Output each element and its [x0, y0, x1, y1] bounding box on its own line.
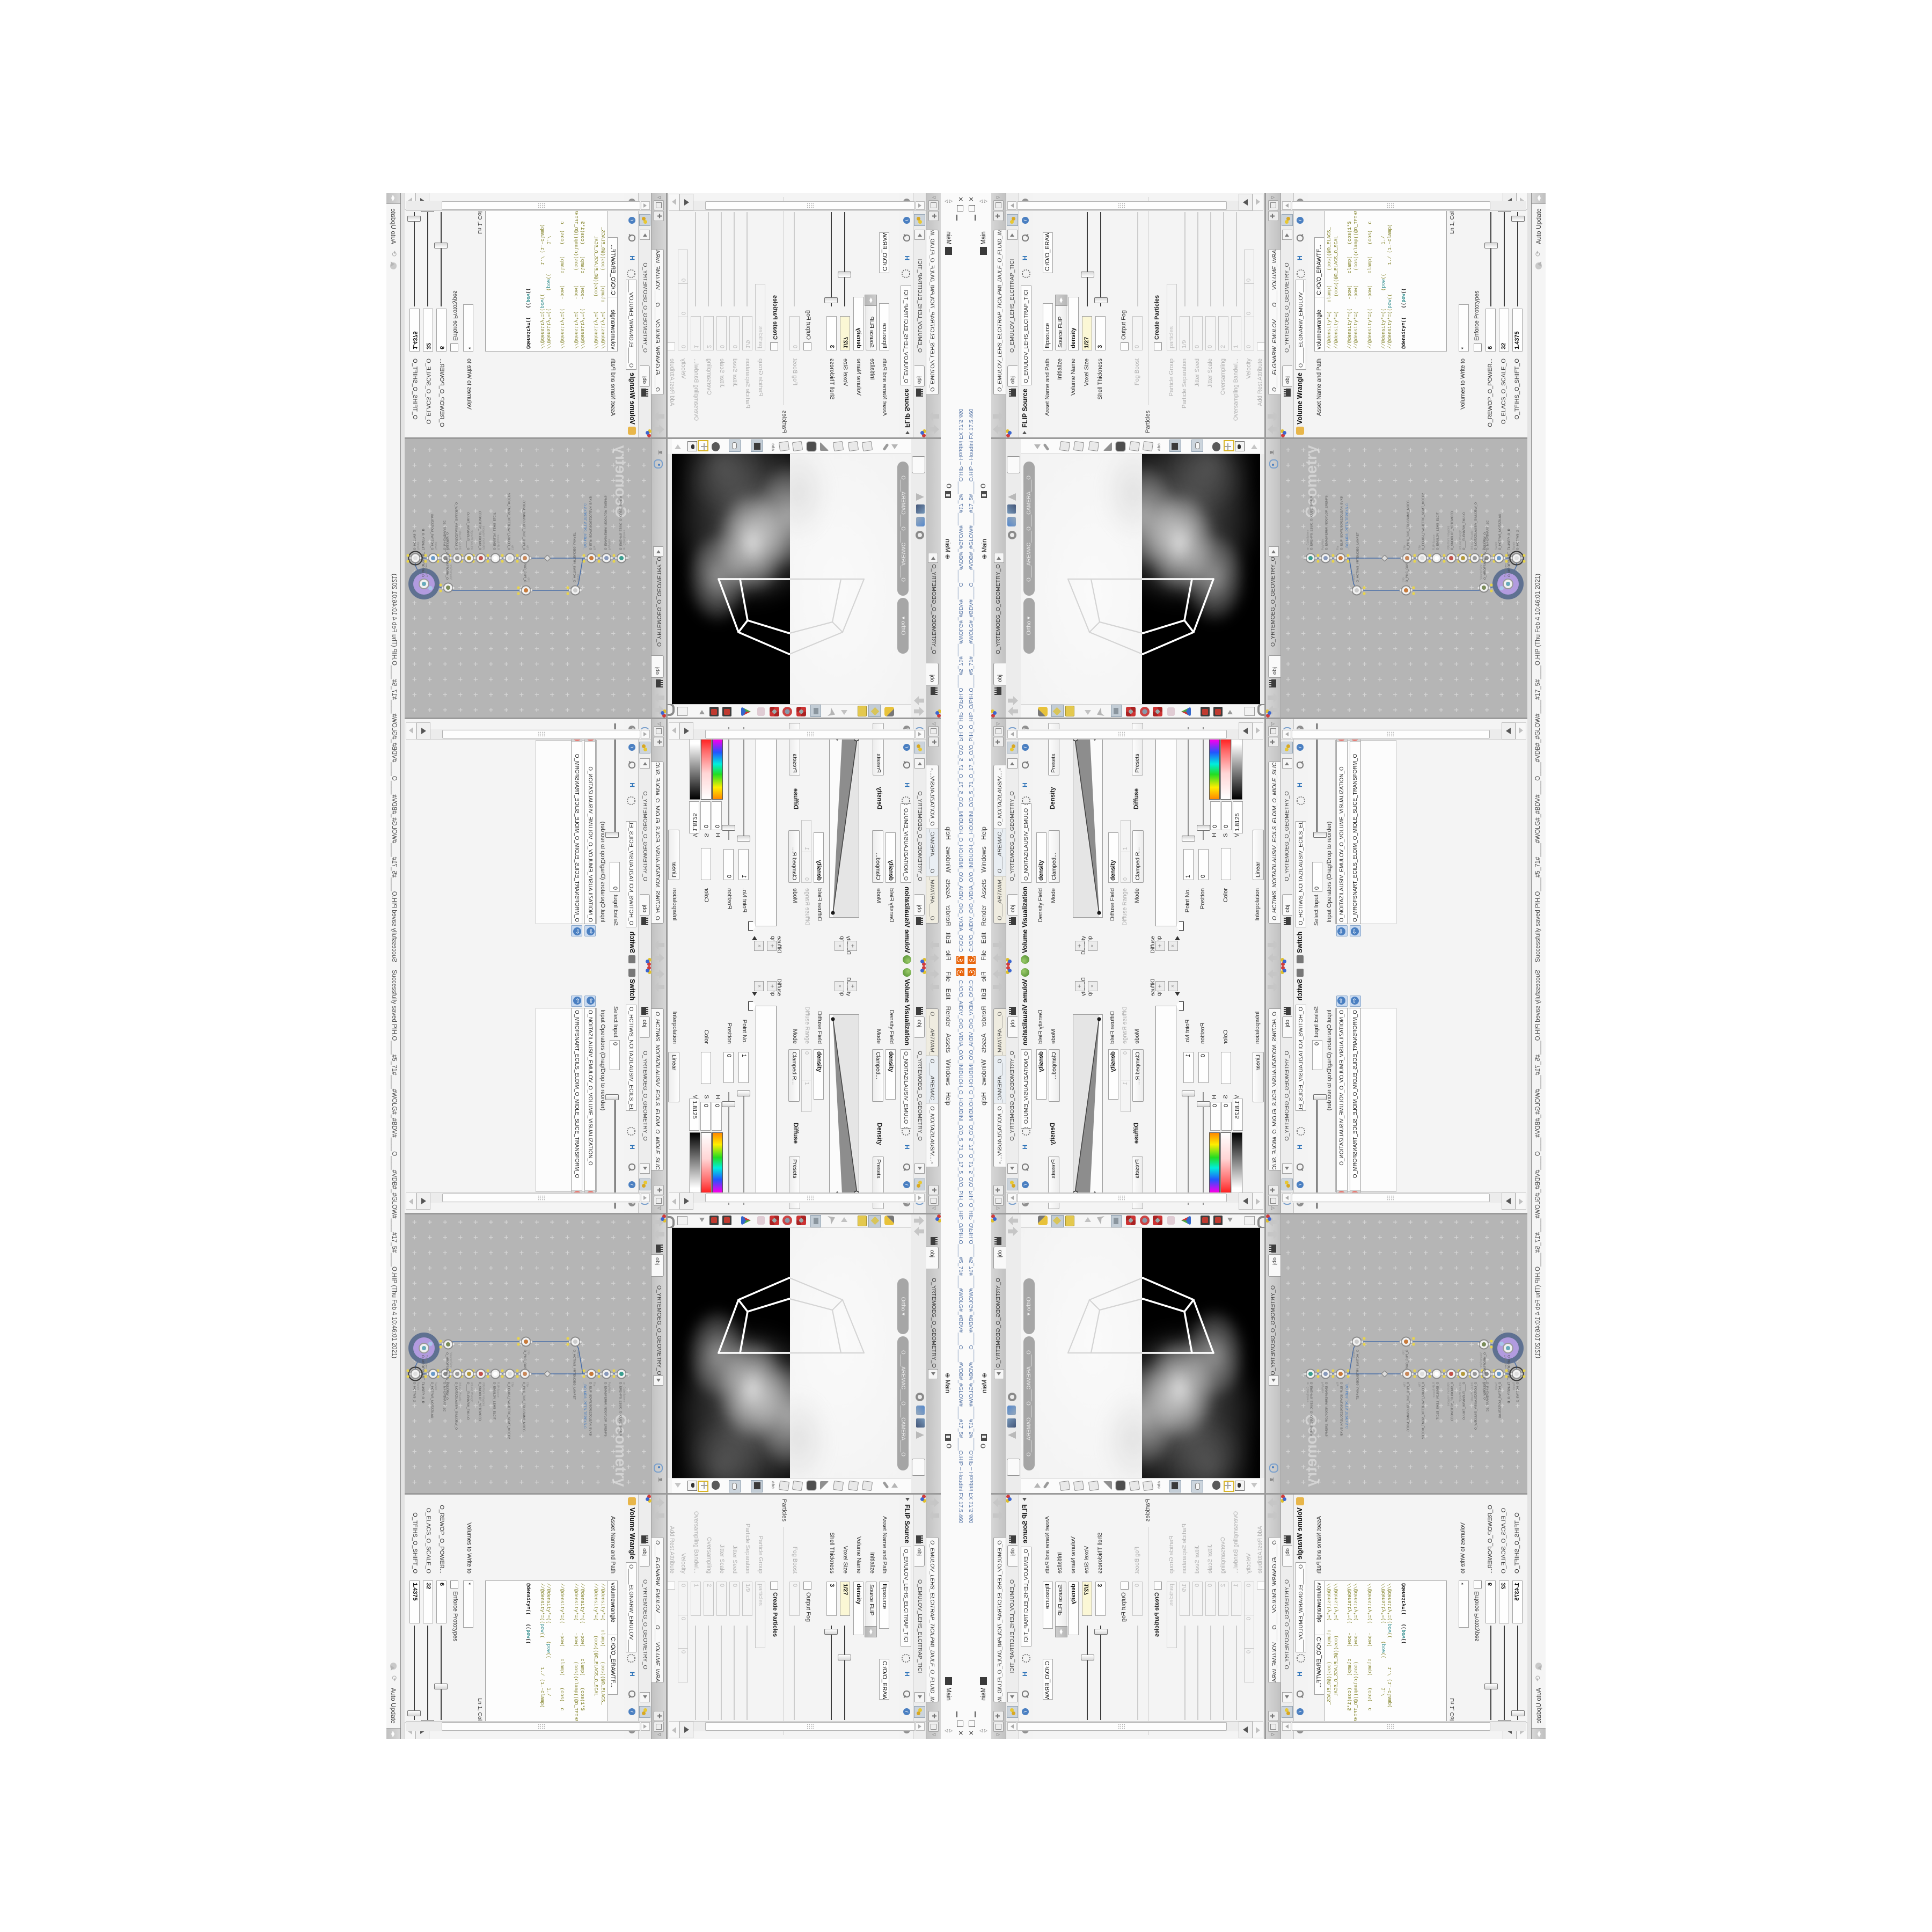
svg-text:O_EREHPS_EBUC_O_CUBE_SPHER: O_EREHPS_EBUC_O_CUBE_SPHER — [619, 1382, 622, 1436]
svg-text:O_ELIF_BDVNJSOG2ZOLEAN_BVKB: O_ELIF_BDVNJSOG2ZOLEAN_BVKB — [589, 496, 592, 550]
svg-text:O_EMASFERIW_NOGYLOP_ERENPS_: O_EMASFERIW_NOGYLOP_ERENPS_ — [1326, 1382, 1329, 1439]
svg-text:_BO.MD3_PETS.TEPE4S.C: _BO.MD3_PETS.TEPE4S.C — [1345, 1382, 1349, 1429]
svg-text:O_HCTIWS_2: O_HCTIWS_2 — [1517, 530, 1520, 550]
svg-text:Clip: Clip — [527, 577, 530, 582]
svg-text:O_NOITAZILAUSIV_GIMUJBW_O: O_NOITAZILAUSIV_GIMUJBW_O — [1475, 502, 1478, 550]
svg-text:O_MROFSNARTSV_EMUJBW_O: O_MROFSNARTSV_EMUJBW_O — [1484, 532, 1487, 580]
svg-text:an_CubeSphere: an_CubeSphere — [623, 530, 626, 550]
svg-text:PolyWire: PolyWire — [608, 1382, 611, 1393]
svg-text:Switch: Switch — [1495, 542, 1498, 550]
svg-text:Clip: Clip — [1418, 545, 1422, 550]
svg-text:O____ELGNARW_EMULO: O____ELGNARW_EMULO — [466, 512, 470, 550]
svg-text:O_EMULOV_LEHS_ELCIT: O_EMULOV_LEHS_ELCIT — [493, 512, 496, 550]
svg-text:FLIP Source: FLIP Source — [1433, 1382, 1436, 1397]
svg-text:Switch: Switch — [434, 1382, 437, 1390]
svg-text:O_EMULOV_LEHS_ELCIT: O_EMULOV_LEHS_ELCIT — [1437, 1382, 1440, 1420]
svg-text:Volume Wrangle: Volume Wrangle — [1459, 1382, 1462, 1402]
svg-text:O_PILC_BUS_ERUCSUM2_MOEG: O_PILC_BUS_ERUCSUM2_MOEG — [1407, 1382, 1410, 1432]
svg-text:O_ELIF_BDVNJSOG2ZOLEAN_BVKB: O_ELIF_BDVNJSOG2ZOLEAN_BVKB — [1341, 496, 1344, 550]
svg-text:VolumeSlice: VolumeSlice — [449, 1352, 452, 1368]
svg-text:File: File — [592, 546, 596, 550]
svg-text:Volume Visualiz: Volume Visualiz — [458, 530, 462, 550]
svg-text:Switch: Switch — [1495, 1382, 1498, 1390]
svg-text:Volume Wrangle: Volume Wrangle — [470, 530, 473, 550]
svg-text:O_NOITAZILAUSIV_GIMUJBW_O: O_NOITAZILAUSIV_GIMUJBW_O — [455, 1382, 458, 1430]
svg-text:O_MROFSNART_TLUSER_O_R: O_MROFSNART_TLUSER_O_R — [1507, 528, 1511, 577]
svg-text:Clip: Clip — [526, 545, 529, 550]
svg-text:O_HCTIWS_2: O_HCTIWS_2 — [1517, 1382, 1520, 1402]
svg-text:O_HCTIWS_2: O_HCTIWS_2 — [413, 1382, 416, 1402]
svg-text:O_EMULOV_LEHS_ELCIT: O_EMULOV_LEHS_ELCIT — [1437, 512, 1440, 550]
svg-text:O_SNOGLOP_YRTEMOED: O_SNOGLOP_YRTEMOED — [1451, 1382, 1454, 1421]
svg-text:Volume Wrangle: Volume Wrangle — [1459, 530, 1462, 550]
svg-text:Switch: Switch — [416, 1382, 420, 1390]
svg-text:O_EGUGJ_PWLJETRC_SGMT_MOEG2: O_EGUGJ_PWLJETRC_SGMT_MOEG2 — [507, 1382, 510, 1439]
svg-text:O_EREHPS_EBUC_O_CUBE_SPHER: O_EREHPS_EBUC_O_CUBE_SPHER — [1311, 496, 1314, 550]
svg-text:File: File — [1337, 1382, 1340, 1386]
svg-text:Volume Visualiz: Volume Visualiz — [1471, 1382, 1474, 1402]
svg-text:O_ELIF_BDVNJSOG2ZOLEAN_BVKB: O_ELIF_BDVNJSOG2ZOLEAN_BVKB — [1341, 1382, 1344, 1436]
svg-text:O_EGUGJ_PWLJETRC_SGMT_MOEG2: O_EGUGJ_PWLJETRC_SGMT_MOEG2 — [1422, 1382, 1425, 1439]
svg-text:VDB from Polygons: VDB from Polygons — [1447, 1382, 1451, 1407]
svg-text:O_HCTIWS_NOITAZILAU: O_HCTIWS_NOITAZILAU — [430, 514, 434, 550]
svg-text:VDB from Polygons: VDB from Polygons — [482, 525, 485, 550]
svg-text:Switch: Switch — [1513, 542, 1516, 550]
svg-text:VDB from Polygons: VDB from Polygons — [1447, 525, 1451, 550]
svg-text:O_MROFSNARTSV_EMUJBW_O: O_MROFSNARTSV_EMUJBW_O — [1484, 1352, 1487, 1400]
svg-text:PolyWire: PolyWire — [1322, 1382, 1325, 1393]
svg-text:an_CubeSphere: an_CubeSphere — [623, 1382, 626, 1402]
svg-text:O____ELGNARW_EMULO: O____ELGNARW_EMULO — [1463, 1382, 1466, 1420]
svg-text:Clip: Clip — [1402, 577, 1406, 582]
svg-text:_BO.MD3_PETS.TEPE4S.C: _BO.MD3_PETS.TEPE4S.C — [583, 503, 587, 550]
svg-text:O_EREHPS_EBUC_O_CUBE_SPHER: O_EREHPS_EBUC_O_CUBE_SPHER — [619, 496, 622, 550]
svg-text:Clip: Clip — [1418, 1382, 1422, 1387]
svg-text:FLIP Source: FLIP Source — [496, 535, 500, 550]
svg-text:O_MROFSNARTSV_EMUJBW_O: O_MROFSNARTSV_EMUJBW_O — [445, 1352, 449, 1400]
svg-text:O_EREHPS_EBUC_O_CUBE_SPHER: O_EREHPS_EBUC_O_CUBE_SPHER — [1311, 1382, 1314, 1436]
svg-text:O_EMASFERIW_NOGYLOP_ERENPS_: O_EMASFERIW_NOGYLOP_ERENPS_ — [1326, 493, 1329, 550]
svg-text:O_HCTIWS_YRTEMOEG_LANRET: O_HCTIWS_YRTEMOEG_LANRET — [573, 532, 576, 582]
svg-text:O_HCTIWS_NOITAZILAU: O_HCTIWS_NOITAZILAU — [1499, 1382, 1502, 1418]
svg-text:O_ELIF_BDVNJSOG2ZOLEAN_BVKB: O_ELIF_BDVNJSOG2ZOLEAN_BVKB — [589, 1382, 592, 1436]
svg-text:FLIP Source: FLIP Source — [496, 1382, 500, 1397]
svg-text:File: File — [592, 1382, 596, 1386]
svg-text:VolumeSlice: VolumeSlice — [1480, 564, 1483, 580]
svg-text:O_PILC_GUS: O_PILC_GUS — [1406, 1350, 1409, 1370]
svg-text:O_PILC_GUS: O_PILC_GUS — [523, 562, 526, 582]
svg-text:Volume Visualiz: Volume Visualiz — [458, 1382, 462, 1402]
svg-text:O____ELGNARW_EMULO: O____ELGNARW_EMULO — [1463, 512, 1466, 550]
svg-text:Clip: Clip — [527, 1350, 530, 1355]
svg-text:Switch: Switch — [576, 1350, 580, 1358]
svg-text:Switch: Switch — [416, 542, 420, 550]
svg-text:Switch: Switch — [1353, 574, 1356, 582]
svg-text:Clip: Clip — [511, 545, 514, 550]
svg-text:O_EGUGJ_PWLJETRC_SGMT_MOEG2: O_EGUGJ_PWLJETRC_SGMT_MOEG2 — [1422, 493, 1425, 550]
svg-text:PolyWire: PolyWire — [608, 539, 611, 550]
svg-text:Volume Wrangle: Volume Wrangle — [470, 1382, 473, 1402]
svg-text:O_SNOGLOP_YRTEMOED: O_SNOGLOP_YRTEMOED — [1451, 511, 1454, 550]
svg-text:FLIP Source: FLIP Source — [1433, 535, 1436, 550]
svg-text:PolyWire: PolyWire — [1322, 539, 1325, 550]
svg-text:O_PILC_GUS: O_PILC_GUS — [1406, 562, 1409, 582]
svg-text:O_PILC_BUS_ERUCSUM2_MOEG: O_PILC_BUS_ERUCSUM2_MOEG — [1407, 500, 1410, 550]
svg-text:O_SNOGLOP_YRTEMOED: O_SNOGLOP_YRTEMOED — [478, 1382, 481, 1421]
svg-text:O_HCTIWS_2: O_HCTIWS_2 — [413, 530, 416, 550]
svg-text:O_HCTIWS_NOITAZILAU: O_HCTIWS_NOITAZILAU — [430, 1382, 434, 1418]
svg-text:O_MROFSNART_TLUSER_O_R: O_MROFSNART_TLUSER_O_R — [1507, 1355, 1511, 1404]
svg-text:O____ELGNARW_EMULO: O____ELGNARW_EMULO — [466, 1382, 470, 1420]
svg-text:VolumeSlice: VolumeSlice — [1480, 1352, 1483, 1368]
svg-text:Clip: Clip — [511, 1382, 514, 1387]
svg-text:O_PILC_GUS: O_PILC_GUS — [523, 1350, 526, 1370]
svg-text:O_SNOGLOP_YRTEMOED: O_SNOGLOP_YRTEMOED — [478, 511, 481, 550]
svg-text:O_MROFSNART_TLUSER_O_R: O_MROFSNART_TLUSER_O_R — [421, 1355, 425, 1404]
svg-text:_BO.MD3_PETS.TEPE4S.C: _BO.MD3_PETS.TEPE4S.C — [1345, 503, 1349, 550]
svg-text:O_NOITAZILAUSIV_GIMUJBW_O: O_NOITAZILAUSIV_GIMUJBW_O — [1475, 1382, 1478, 1430]
svg-text:O_HCTIWS_YRTEMOEG_LANRET: O_HCTIWS_YRTEMOEG_LANRET — [1357, 1350, 1360, 1400]
svg-text:O_NOITAZILAUSIV_GIMUJBW_O: O_NOITAZILAUSIV_GIMUJBW_O — [455, 502, 458, 550]
svg-text:an_CubeSphere: an_CubeSphere — [1307, 530, 1310, 550]
svg-text:O_PILC_BUS_ERUCSUM2_MOEG: O_PILC_BUS_ERUCSUM2_MOEG — [522, 1382, 525, 1432]
svg-text:Clip: Clip — [1403, 1382, 1407, 1387]
svg-text:Switch: Switch — [1353, 1350, 1356, 1358]
svg-text:Switch: Switch — [434, 542, 437, 550]
svg-text:O_EMASFERIW_NOGYLOP_ERENPS_: O_EMASFERIW_NOGYLOP_ERENPS_ — [604, 1382, 607, 1439]
svg-text:Clip: Clip — [526, 1382, 529, 1387]
svg-text:O_PILC_BUS_ERUCSUM2_MOEG: O_PILC_BUS_ERUCSUM2_MOEG — [522, 500, 525, 550]
svg-text:O_MROFSNARTSV_EMUJBW_O: O_MROFSNARTSV_EMUJBW_O — [445, 532, 449, 580]
svg-text:O_HCTIWS_NOITAZILAU: O_HCTIWS_NOITAZILAU — [1499, 514, 1502, 550]
svg-text:O_MROFSNART_TLUSER_O_R: O_MROFSNART_TLUSER_O_R — [421, 528, 425, 577]
svg-text:_BO.MD3_PETS.TEPE4S.C: _BO.MD3_PETS.TEPE4S.C — [583, 1382, 587, 1429]
svg-text:Transform: Transform — [425, 1355, 428, 1369]
svg-text:VDB from Polygons: VDB from Polygons — [482, 1382, 485, 1407]
svg-text:Switch: Switch — [1513, 1382, 1516, 1390]
svg-text:O_EGUGJ_PWLJETRC_SGMT_MOEG2: O_EGUGJ_PWLJETRC_SGMT_MOEG2 — [507, 493, 510, 550]
svg-text:O_HCTIWS_YRTEMOEG_LANRET: O_HCTIWS_YRTEMOEG_LANRET — [1357, 532, 1360, 582]
svg-text:Transform: Transform — [425, 563, 428, 577]
svg-text:Volume Visualiz: Volume Visualiz — [1471, 530, 1474, 550]
svg-text:O_EMULOV_LEHS_ELCIT: O_EMULOV_LEHS_ELCIT — [493, 1382, 496, 1420]
svg-text:Switch: Switch — [576, 574, 580, 582]
svg-text:an_CubeSphere: an_CubeSphere — [1307, 1382, 1310, 1402]
svg-text:Clip: Clip — [1402, 1350, 1406, 1355]
svg-text:O_HCTIWS_YRTEMOEG_LANRET: O_HCTIWS_YRTEMOEG_LANRET — [573, 1350, 576, 1400]
svg-text:Clip: Clip — [1403, 545, 1407, 550]
svg-text:File: File — [1337, 546, 1340, 550]
svg-text:VolumeSlice: VolumeSlice — [449, 564, 452, 580]
svg-text:O_EMASFERIW_NOGYLOP_ERENPS_: O_EMASFERIW_NOGYLOP_ERENPS_ — [604, 493, 607, 550]
